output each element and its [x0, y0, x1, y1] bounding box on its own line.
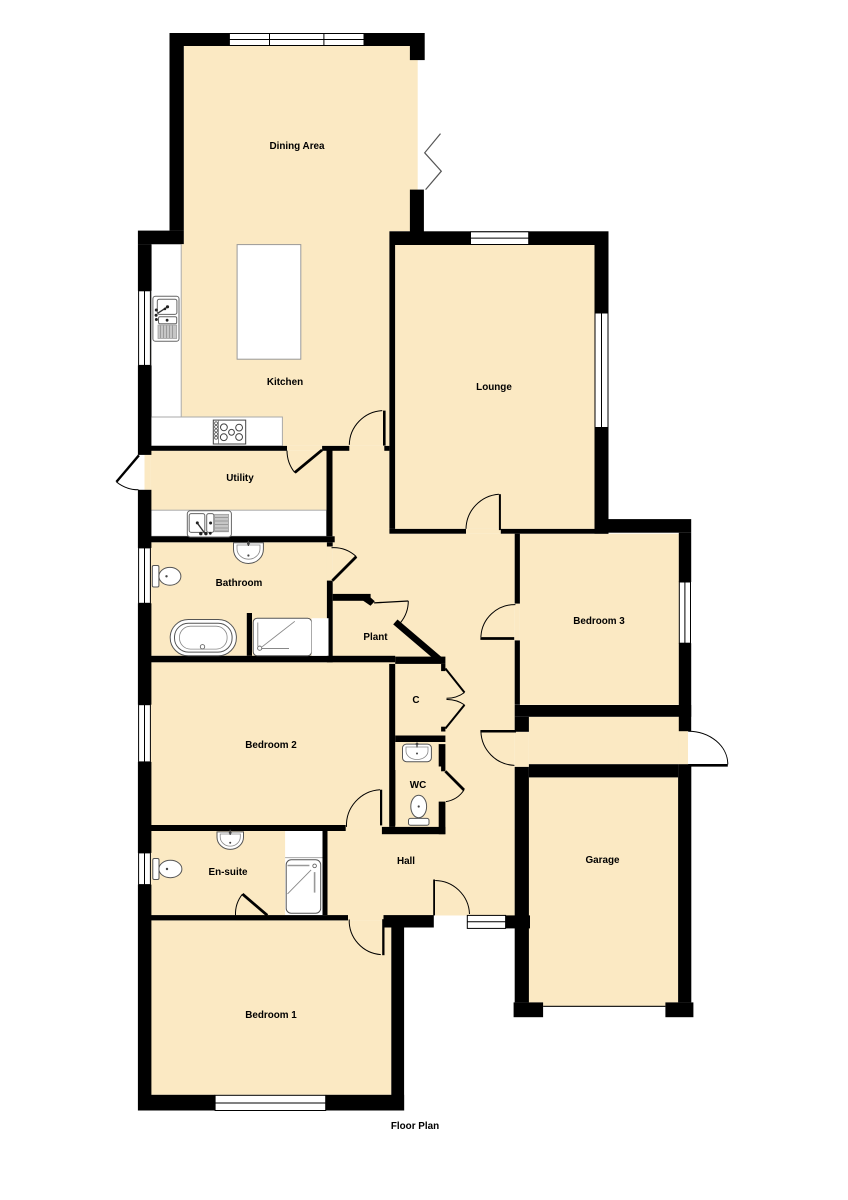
svg-text:Utility: Utility	[226, 473, 254, 484]
svg-text:Hall: Hall	[397, 856, 415, 867]
svg-text:Dining Area: Dining Area	[269, 141, 325, 152]
svg-text:Lounge: Lounge	[476, 382, 512, 393]
svg-text:Plant: Plant	[363, 632, 388, 643]
svg-text:WC: WC	[410, 780, 426, 791]
svg-text:Bedroom 2: Bedroom 2	[245, 740, 297, 751]
svg-text:C: C	[412, 695, 419, 706]
svg-text:Bathroom: Bathroom	[216, 578, 263, 589]
svg-text:Bedroom 3: Bedroom 3	[573, 616, 625, 627]
svg-text:Bedroom 1: Bedroom 1	[245, 1010, 297, 1021]
svg-text:Floor Plan: Floor Plan	[391, 1121, 439, 1132]
svg-text:Garage: Garage	[585, 855, 620, 866]
svg-text:Kitchen: Kitchen	[267, 377, 303, 388]
svg-text:En-suite: En-suite	[209, 867, 248, 878]
